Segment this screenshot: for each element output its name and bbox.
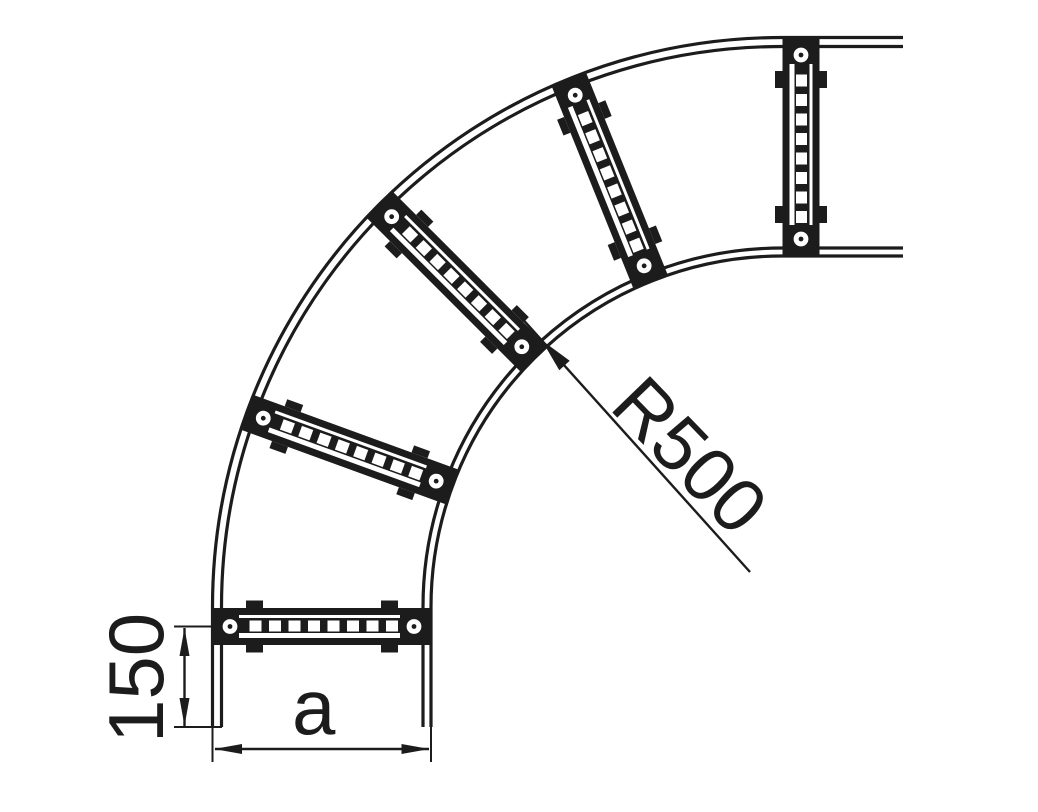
arrowhead-left	[214, 744, 242, 754]
width-label: a	[292, 663, 336, 751]
rung-arc-20deg	[238, 388, 460, 511]
dimension-end-spacing: 150	[92, 613, 222, 743]
rung-arc-68deg	[545, 70, 675, 291]
arrowhead-down	[180, 698, 190, 726]
radius-label: R500	[596, 361, 783, 551]
rung-bottom-end	[213, 601, 430, 653]
arrowhead-up	[180, 628, 190, 656]
rung-right-end	[775, 38, 827, 255]
dimension-width: a	[213, 663, 432, 762]
end-spacing-label: 150	[92, 613, 180, 743]
dimension-radius: R500	[514, 310, 783, 572]
arrowhead-right	[402, 744, 430, 754]
drawing-canvas: 150 a R500	[0, 0, 1038, 812]
cable-ladder-bend-drawing: 150 a R500	[0, 0, 1038, 812]
rung-arc-45deg	[361, 186, 551, 376]
